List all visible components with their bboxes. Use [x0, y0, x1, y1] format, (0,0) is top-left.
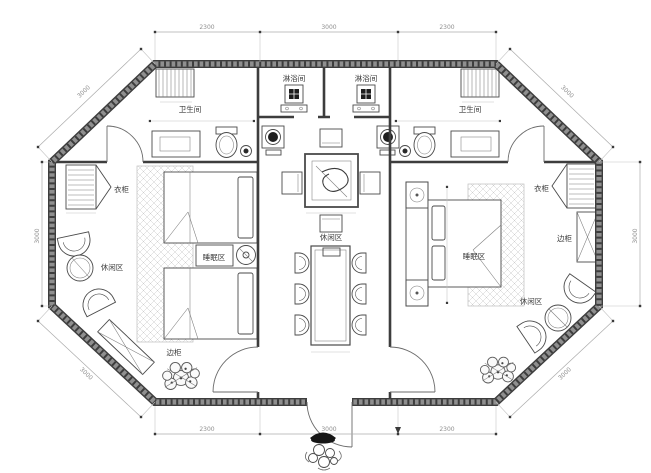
washbasin-left-icon [262, 126, 284, 155]
cabinet-left-bathroom [156, 69, 194, 97]
door-suite-left [213, 347, 258, 392]
dimension-bottom: 2300 3000 2300 [154, 406, 497, 436]
dim-left-side: 3000 [34, 228, 41, 243]
label-lounge-right: 休闲区 [520, 296, 543, 306]
side-cabinet-right [577, 212, 598, 262]
label-side-cabinet-right: 边柜 [557, 233, 572, 243]
label-side-cabinet-left: 边柜 [167, 347, 182, 357]
floor-plan-drawing: 2300 3000 2300 2300 3000 2300 3000 3000 … [0, 0, 651, 473]
label-shower-right: 淋浴间 [355, 73, 378, 83]
dim-diag-tl: 3000 [76, 84, 92, 100]
washbasin-right-icon [377, 126, 399, 155]
shower-drain-right-icon [353, 85, 379, 112]
door-suite-right [390, 347, 435, 392]
dim-diag-bl: 3000 [78, 366, 94, 382]
cabinet-right-bathroom [461, 69, 499, 97]
bed-right [406, 182, 501, 306]
tea-table [305, 154, 358, 207]
label-shower-left: 淋浴间 [283, 73, 306, 83]
door-bathroom-right [508, 126, 544, 162]
dim-bottom-right: 2300 [439, 426, 454, 433]
dim-top-mid: 3000 [321, 24, 336, 31]
toilet-left-icon [216, 127, 237, 158]
floor-plan-canvas: 2300 3000 2300 2300 3000 2300 3000 3000 … [0, 0, 651, 473]
plant-left-icon [163, 362, 200, 389]
label-lounge-left: 休闲区 [101, 262, 124, 272]
shower-drain-left-icon [281, 85, 307, 112]
dim-top-left: 2300 [199, 24, 214, 31]
floor-drain-right-icon [400, 146, 411, 157]
label-wardrobe-left: 衣柜 [114, 184, 129, 194]
section-arrow-icon [395, 427, 401, 434]
dimension-left: 3000 [34, 161, 50, 307]
wardrobe-right [552, 164, 596, 208]
table-lamp-left-icon [237, 246, 256, 265]
dimension-right: 3000 [601, 161, 642, 307]
dimension-diag-top-right: 3000 [496, 48, 614, 162]
door-bathroom-left [107, 126, 143, 162]
vanity-right [451, 131, 499, 157]
dim-bottom-left: 2300 [199, 426, 214, 433]
label-bathroom-right: 卫生间 [459, 104, 482, 114]
label-sleeping-right: 睡眠区 [463, 252, 486, 261]
toilet-right-icon [414, 127, 435, 158]
lounge-set-left [57, 232, 115, 317]
dim-diag-tr: 3000 [559, 84, 575, 100]
label-sleeping-left: 睡眠区 [203, 253, 226, 262]
plant-right-icon [480, 357, 515, 383]
dim-bottom-mid: 3000 [321, 426, 336, 433]
label-lounge-center: 休闲区 [320, 232, 343, 242]
label-bathroom-left: 卫生间 [179, 104, 202, 114]
vanity-left [152, 131, 200, 157]
figurine-icon [305, 433, 341, 471]
wardrobe-left [66, 165, 111, 209]
dim-top-right: 2300 [439, 24, 454, 31]
floor-drain-left-icon [241, 146, 252, 157]
bed-left-2 [164, 268, 257, 339]
label-wardrobe-right: 衣柜 [534, 183, 549, 193]
dimension-diag-top-left: 3000 [37, 48, 155, 162]
dimension-top: 2300 3000 2300 [154, 24, 497, 62]
bed-left-1 [164, 172, 257, 243]
dining-table [311, 246, 350, 345]
dim-right-side: 3000 [632, 228, 639, 243]
dim-diag-br: 3000 [557, 366, 573, 382]
